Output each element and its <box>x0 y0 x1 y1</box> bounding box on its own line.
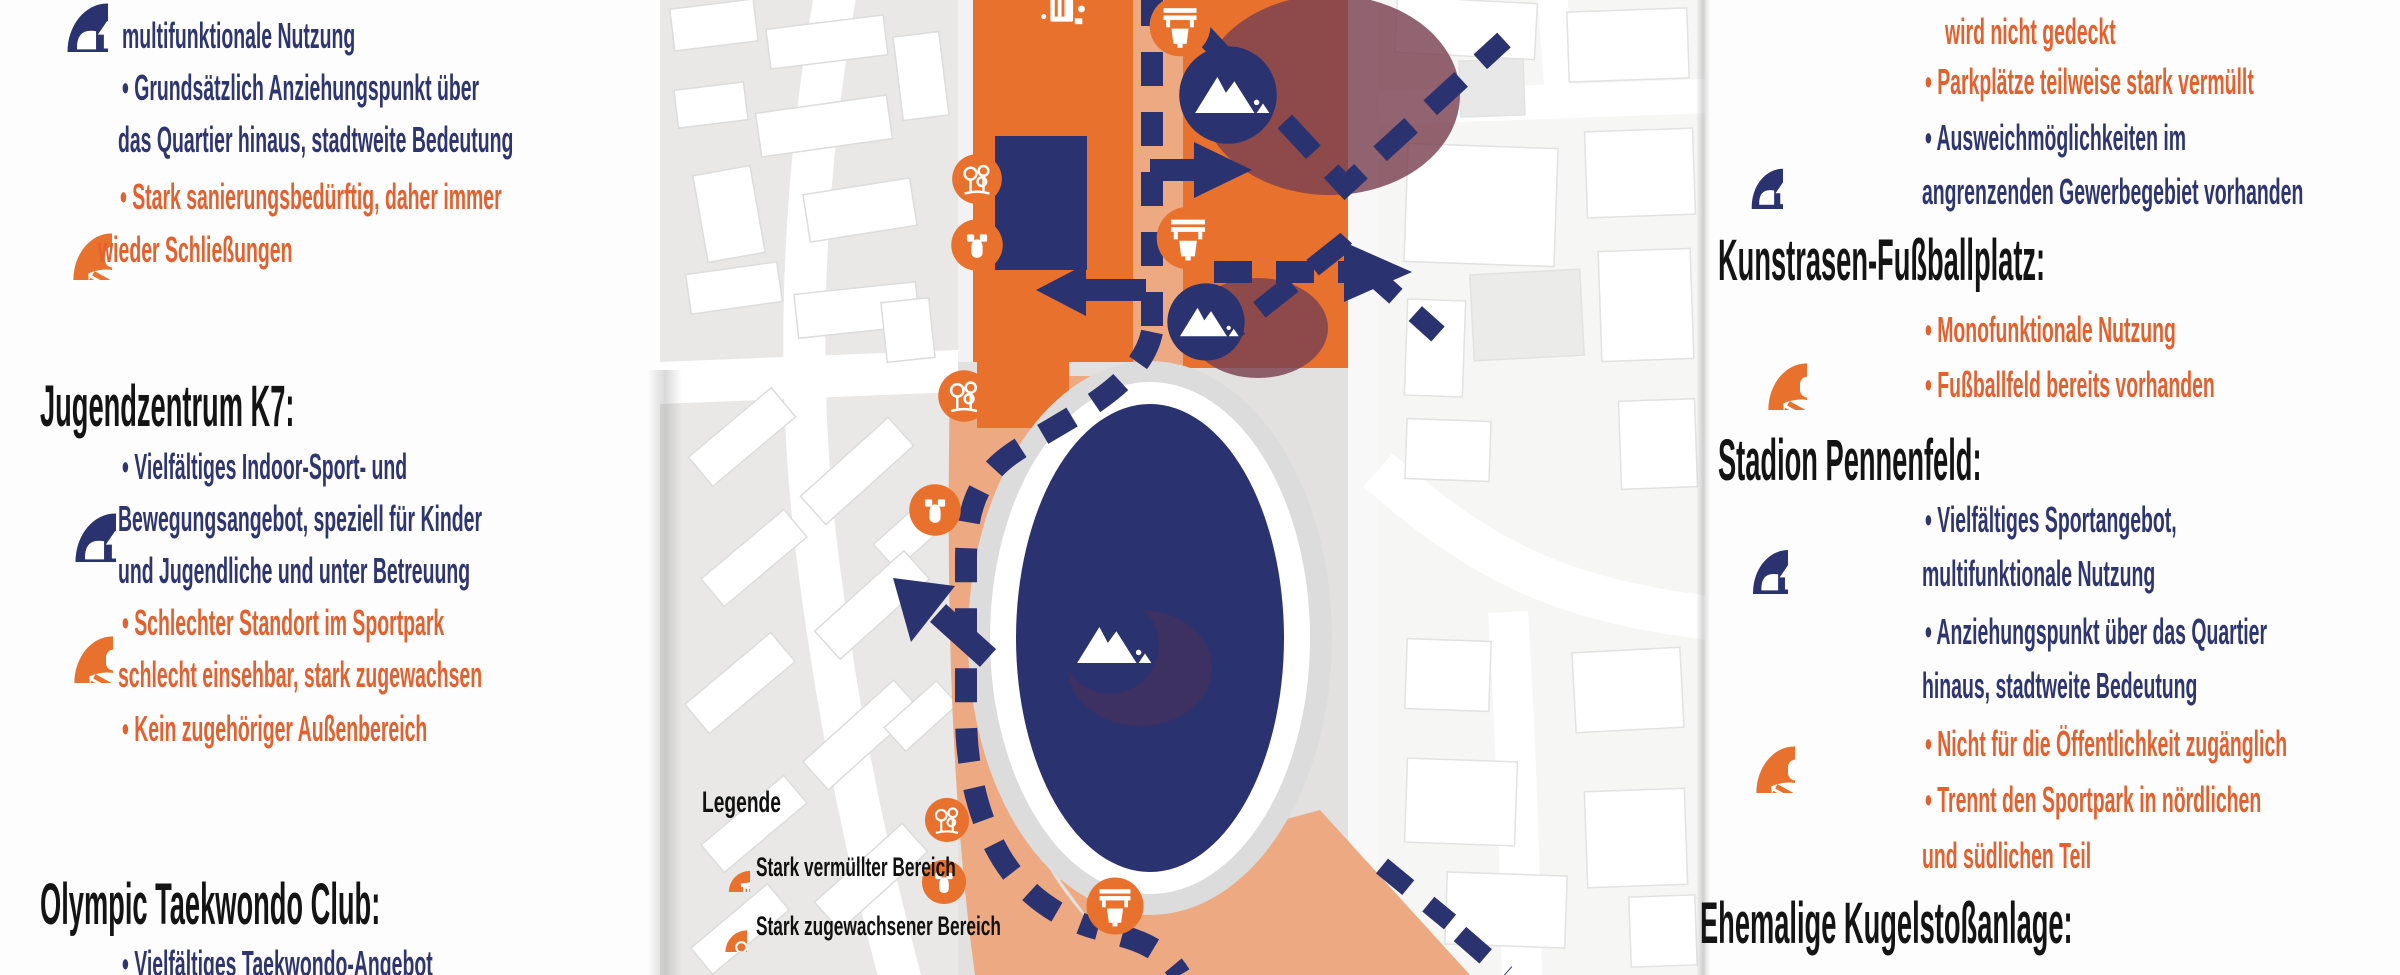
sad-face-icon <box>909 484 961 536</box>
section-heading-jugendzentrum: Jugendzentrum K7: <box>40 378 294 436</box>
note-line: multifunktionale Nutzung <box>1922 554 2155 594</box>
positive-note-icon <box>28 946 116 975</box>
note-line: • Ausweichmöglichkeiten im <box>1925 118 2186 158</box>
legend-label: Stark zugewachsener Bereich <box>756 911 1001 942</box>
overgrown-icon <box>925 798 969 842</box>
note-line: schlecht einsehbar, stark zugewachsen <box>118 655 482 695</box>
note-line: • Fußballfeld bereits vorhanden <box>1925 365 2215 405</box>
section-heading-kugelstoss: Ehemalige Kugelstoßanlage: <box>1700 895 2073 953</box>
positive-note-icon <box>28 458 116 562</box>
note-line: • Nicht für die Öffentlichkeit zugänglic… <box>1925 724 2287 764</box>
negative-note-icon <box>1712 958 1796 975</box>
jugendzentrum-building <box>995 136 1087 270</box>
page: multifunktionale Nutzung • Grundsätzlich… <box>0 0 2400 975</box>
barrier-mountain-icon <box>1061 596 1159 694</box>
section-heading-taekwondo: Olympic Taekwondo Club: <box>40 876 380 934</box>
note-line: • Vielfältiges Indoor-Sport- und <box>122 447 407 487</box>
note-line: wieder Schließungen <box>98 230 292 270</box>
section-heading-stadion: Stadion Pennenfeld: <box>1718 432 1982 490</box>
note-line: • Monofunktionale Nutzung <box>1925 310 2176 350</box>
note-line: • Grundsätzlich Anziehungspunkt über <box>122 68 479 108</box>
bench-litter-icon <box>1086 877 1143 934</box>
note-line: • Vielfältiges Taekwondo-Angebot <box>122 944 433 975</box>
note-line: • Kein zugehöriger Außenbereich <box>122 709 427 749</box>
overgrown-icon <box>938 370 990 422</box>
sad-face-icon <box>951 219 1003 271</box>
legend-label: Stark vermüllter Bereich <box>756 852 956 883</box>
positive-note-icon <box>1712 500 1788 594</box>
note-line: und Jugendliche und unter Betreuung <box>118 551 470 591</box>
site-plan-map <box>660 0 1705 975</box>
positive-note-icon <box>1715 123 1783 209</box>
note-line: multifunktionale Nutzung <box>122 16 355 56</box>
bench-litter-icon <box>1157 207 1220 270</box>
barrier-mountain-icon <box>1179 46 1277 144</box>
overgrown-icon <box>952 154 1002 204</box>
note-line: angrenzenden Gewerbegebiet vorhanden <box>1922 172 2303 212</box>
note-line: • Schlechter Standort im Sportpark <box>122 603 444 643</box>
cut-off-icon <box>702 965 754 975</box>
note-line: und südlichen Teil <box>1922 836 2091 876</box>
note-line: • Anziehungspunkt über das Quartier <box>1925 612 2267 652</box>
barrier-mountain-icon <box>1167 283 1244 360</box>
positive-note-icon <box>20 0 108 52</box>
note-line: das Quartier hinaus, stadtweite Bedeutun… <box>118 120 513 160</box>
note-line: • Vielfältiges Sportangebot, <box>1925 500 2177 540</box>
legend-title: Legende <box>702 786 781 820</box>
negative-note-icon <box>29 583 113 683</box>
negative-note-icon <box>1723 310 1807 410</box>
note-line: hinaus, stadtweite Bedeutung <box>1922 666 2197 706</box>
note-line: • Parkplätze teilweise stark vermüllt <box>1925 62 2254 102</box>
road <box>1552 0 1560 96</box>
overgrown-icon <box>700 905 747 952</box>
note-line: • Stark sanierungsbedürftig, daher immer <box>120 177 502 217</box>
litter-icon <box>704 846 750 892</box>
note-line: Bewegungsangebot, speziell für Kinder <box>118 499 482 539</box>
note-line: • Trennt den Sportpark in nördlichen <box>1925 780 2261 820</box>
negative-note-icon <box>1711 693 1795 793</box>
note-line: wird nicht gedeckt <box>1945 12 2116 52</box>
section-heading-kunstrasen: Kunstrasen-Fußballplatz: <box>1718 232 2045 290</box>
